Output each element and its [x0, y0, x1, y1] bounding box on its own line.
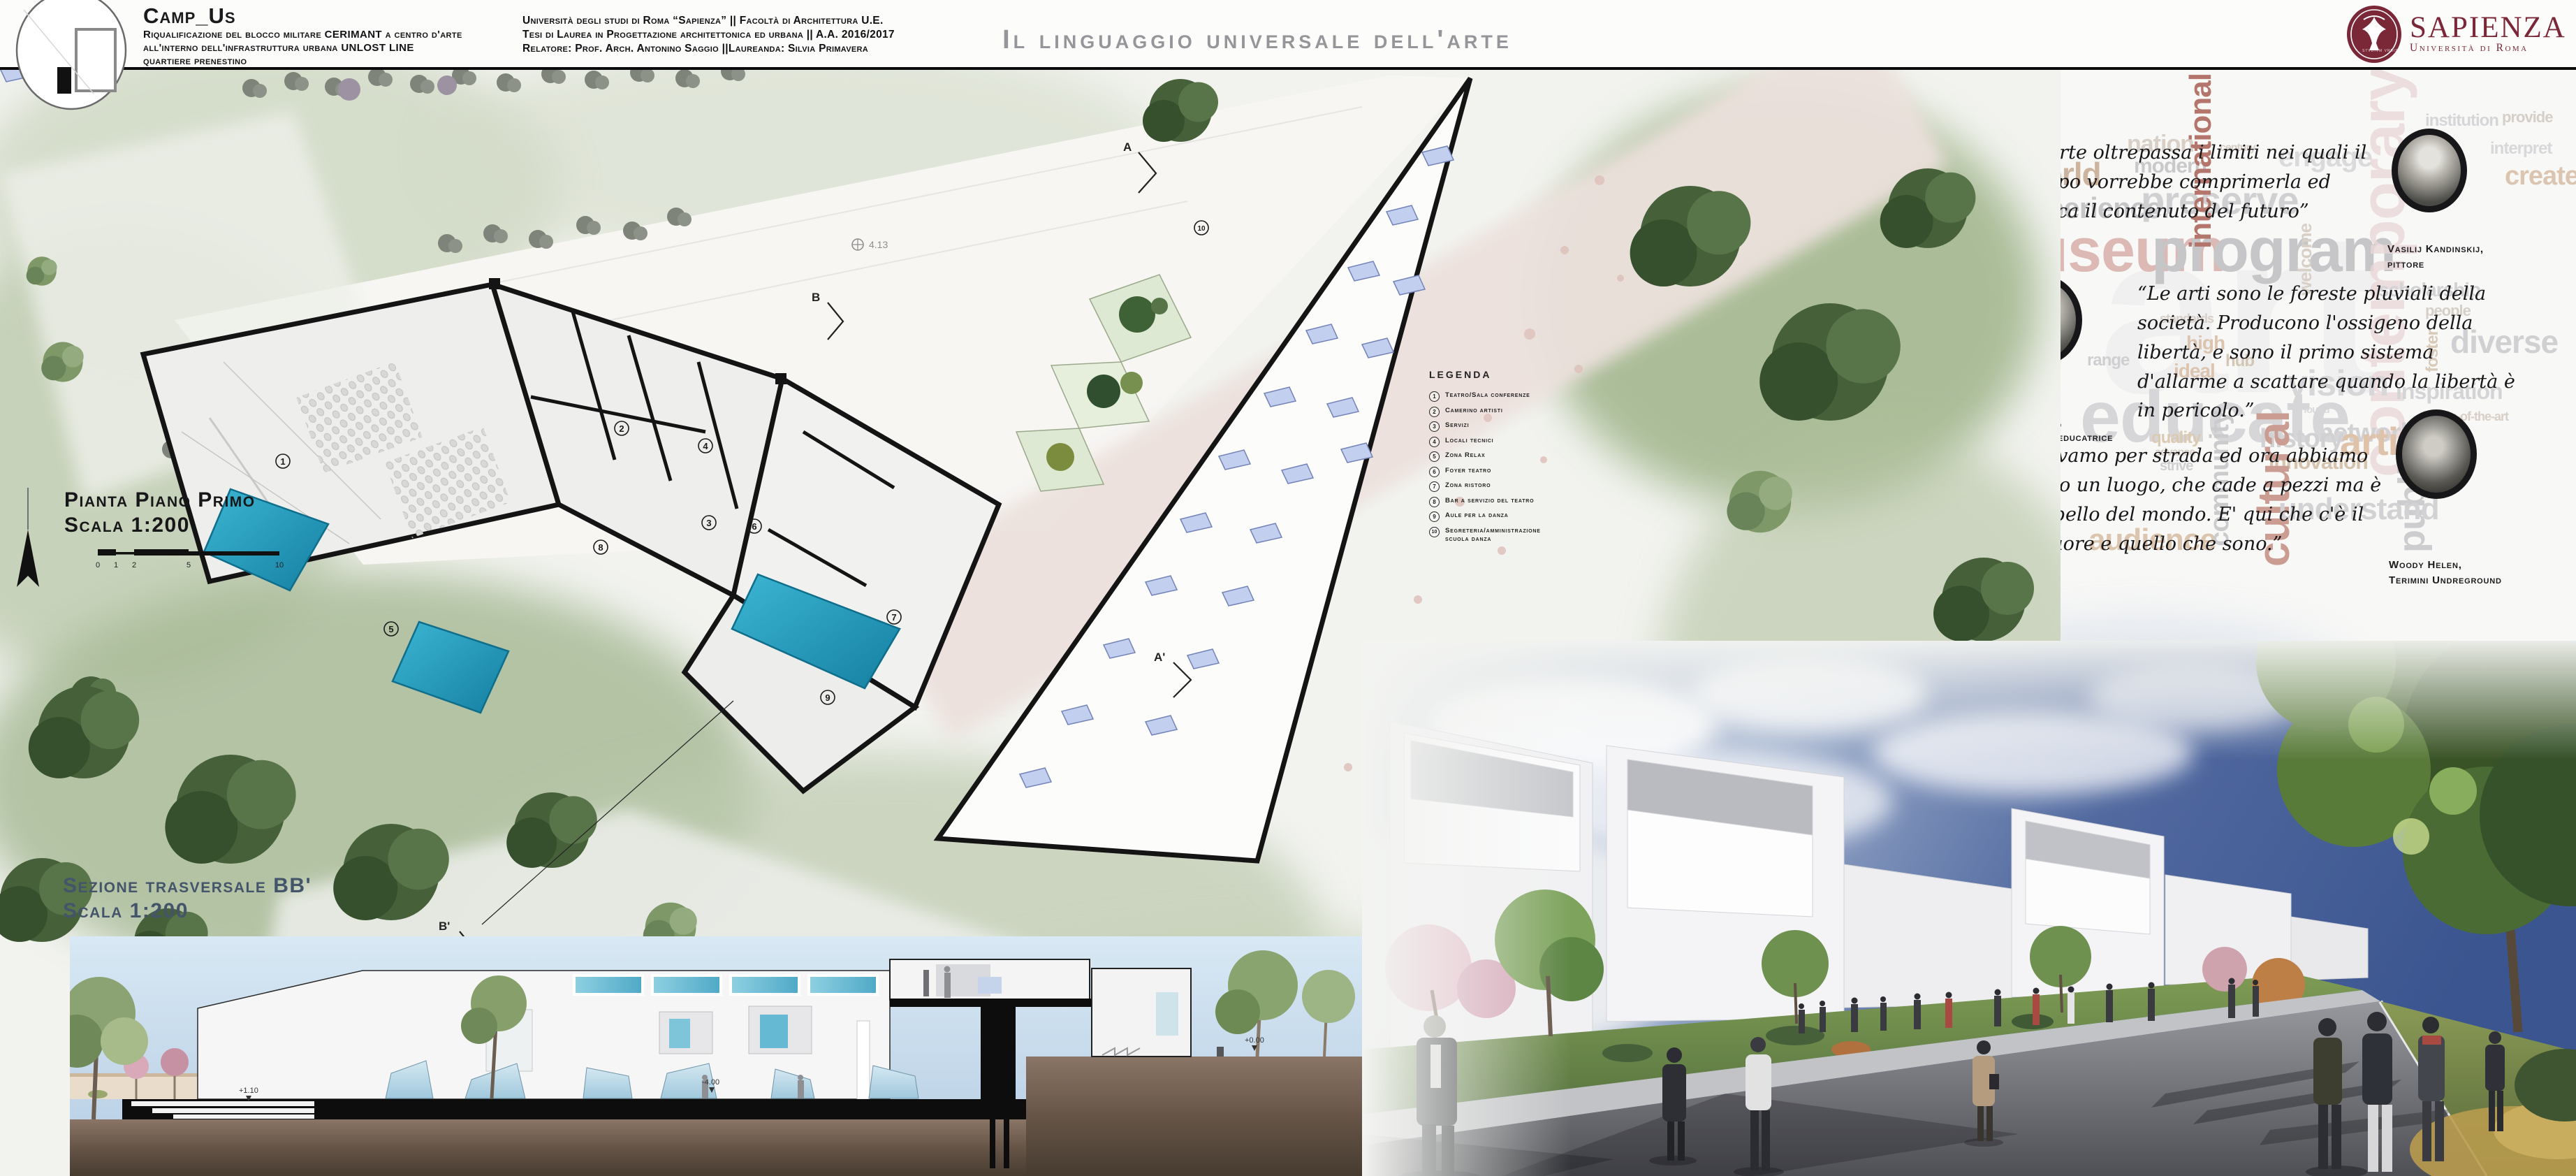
wordcloud-word: institution [2425, 113, 2498, 129]
legend-label: Servizi [1445, 421, 1469, 430]
svg-text:+0.00: +0.00 [1245, 1036, 1264, 1045]
legend-num: 8 [1429, 497, 1440, 507]
author-name: Woody Helen, [2389, 558, 2502, 573]
project-code: Camp_Us [143, 4, 462, 28]
legend-label: Zona Relax [1445, 451, 1486, 460]
legend-item: 5 Zona Relax [1429, 451, 1569, 462]
portrait-kandinskij [2392, 129, 2467, 212]
render-svg [1362, 641, 2576, 1176]
sapienza-logo: SAPIENZA Università di Roma STVDIVM VRBI… [2346, 6, 2566, 63]
legend-item: 9 Aule per la danza [1429, 511, 1569, 522]
legend-num: 10 [1429, 527, 1440, 537]
legend-title: LEGENDA [1429, 369, 1569, 380]
legend-num: 7 [1429, 481, 1440, 492]
campus-logo-icon [10, 0, 136, 115]
legend-label: Teatro/Sala conferenze [1445, 391, 1530, 400]
legend-num: 2 [1429, 407, 1440, 417]
university-info-block: Università degli studi di Roma “Sapienza… [522, 14, 895, 56]
svg-text:2: 2 [619, 423, 624, 434]
svg-text:0: 0 [96, 561, 100, 569]
legend-item: 2 Camerino artisti [1429, 407, 1569, 417]
author-name: Vasilij Kandinskij, [2387, 242, 2484, 257]
quote-wayne: “Le arti sono le foreste pluviali della … [2137, 280, 2523, 426]
svg-text:7: 7 [891, 612, 896, 623]
wordcloud-word: range [2087, 353, 2129, 369]
project-subtitle: all'interno dell'infrastruttura urbana U… [143, 41, 462, 55]
wordcloud-word: provide [2502, 110, 2552, 125]
project-title-block: Camp_Us Riqualificazione del blocco mili… [143, 4, 462, 68]
legend-num: 1 [1429, 391, 1440, 402]
legend-label: Segreteria/amministrazione scuola danza [1445, 527, 1543, 545]
svg-text:+1.10: +1.10 [239, 1087, 258, 1095]
svg-text:5: 5 [388, 624, 393, 634]
svg-text:B: B [812, 291, 820, 304]
university-line: Relatore: Prof. Arch. Antonino Saggio ||… [522, 42, 895, 56]
legend-item: 4 Locali tecnici [1429, 437, 1569, 447]
svg-text:B': B' [439, 920, 450, 933]
svg-text:6: 6 [752, 521, 756, 532]
svg-text:A: A [1123, 140, 1132, 154]
legend-num: 9 [1429, 511, 1440, 522]
svg-text:10: 10 [275, 561, 284, 569]
project-subtitle: Riqualificazione del blocco militare CER… [143, 28, 462, 41]
author-role: Terimini Undreground [2389, 573, 2502, 588]
legend-item: 8 Bar a servizio del teatro [1429, 497, 1569, 507]
svg-text:2: 2 [132, 561, 136, 569]
legend-label: Locali tecnici [1445, 437, 1493, 446]
svg-text:5: 5 [186, 561, 191, 569]
legend-label: Foyer teatro [1445, 467, 1491, 476]
legend-item: 3 Servizi [1429, 421, 1569, 432]
plan-scale: Scala 1:200 [64, 513, 256, 538]
legend-num: 5 [1429, 451, 1440, 462]
svg-text:1: 1 [280, 456, 285, 467]
section-ground [122, 1099, 1026, 1119]
author-role: pittore [2387, 257, 2484, 273]
section-right-block [1092, 968, 1191, 1057]
legend-label: Zona ristoro [1445, 481, 1491, 491]
svg-text:-4.00: -4.00 [702, 1078, 719, 1087]
wordcloud-word: interpret [2490, 141, 2552, 157]
legend-item: 6 Foyer teatro [1429, 467, 1569, 477]
svg-text:3: 3 [706, 518, 711, 528]
sapienza-motto: STVDIVM VRBIS [2362, 49, 2399, 53]
quote-author: Vasilij Kandinskij, pittore [2387, 242, 2484, 273]
svg-text:9: 9 [825, 692, 830, 703]
presentation-board: 1 2 3 4 5 6 7 8 9 10 A A' B B' [0, 0, 2576, 1176]
legend: LEGENDA 1 Teatro/Sala conferenze 2 Camer… [1429, 369, 1569, 549]
legend-item: 10 Segreteria/amministrazione scuola dan… [1429, 527, 1569, 545]
university-line: Università degli studi di Roma “Sapienza… [522, 14, 895, 28]
project-subtitle: quartiere prenestino [143, 55, 462, 68]
svg-text:A': A' [1154, 651, 1165, 664]
svg-text:4: 4 [703, 441, 708, 451]
board-title: Il linguaggio universale dell'arte [908, 25, 1607, 55]
spot-elevation: 4.13 [852, 239, 888, 250]
legend-label: Camerino artisti [1445, 407, 1503, 416]
section-scale: Scala 1:200 [63, 899, 312, 924]
svg-text:8: 8 [598, 542, 603, 553]
legend-label: Aule per la danza [1445, 511, 1509, 521]
quote-author: Woody Helen, Terimini Undreground [2389, 558, 2502, 588]
quote-kandinskij: “L'arte oltrepassa i limiti nei quali il… [2021, 138, 2377, 226]
svg-text:4.13: 4.13 [869, 239, 888, 250]
legend-item: 7 Zona ristoro [1429, 481, 1569, 492]
wordcloud-word: create [2505, 164, 2576, 189]
section-title: Sezione trasversale BB' [63, 873, 312, 899]
svg-text:10: 10 [1197, 225, 1206, 233]
portrait-helen [2396, 409, 2477, 499]
legend-num: 3 [1429, 421, 1440, 432]
plan-label: Pianta Piano Primo Scala 1:200 [64, 488, 256, 538]
university-line: Tesi di Laurea in Progettazione architet… [522, 28, 895, 42]
plan-title: Pianta Piano Primo [64, 488, 256, 513]
sapienza-wordmark: SAPIENZA Università di Roma [2410, 14, 2566, 55]
legend-num: 6 [1429, 467, 1440, 477]
sapienza-emblem-icon [2346, 6, 2403, 63]
legend-num: 4 [1429, 437, 1440, 447]
svg-text:1: 1 [114, 561, 118, 569]
section-label: Sezione trasversale BB' Scala 1:200 [63, 873, 312, 924]
section-drawing-svg: +1.10 -4.00 +0.00 [70, 936, 1362, 1176]
legend-label: Bar a servizio del teatro [1445, 497, 1534, 506]
legend-item: 1 Teatro/Sala conferenze [1429, 391, 1569, 402]
